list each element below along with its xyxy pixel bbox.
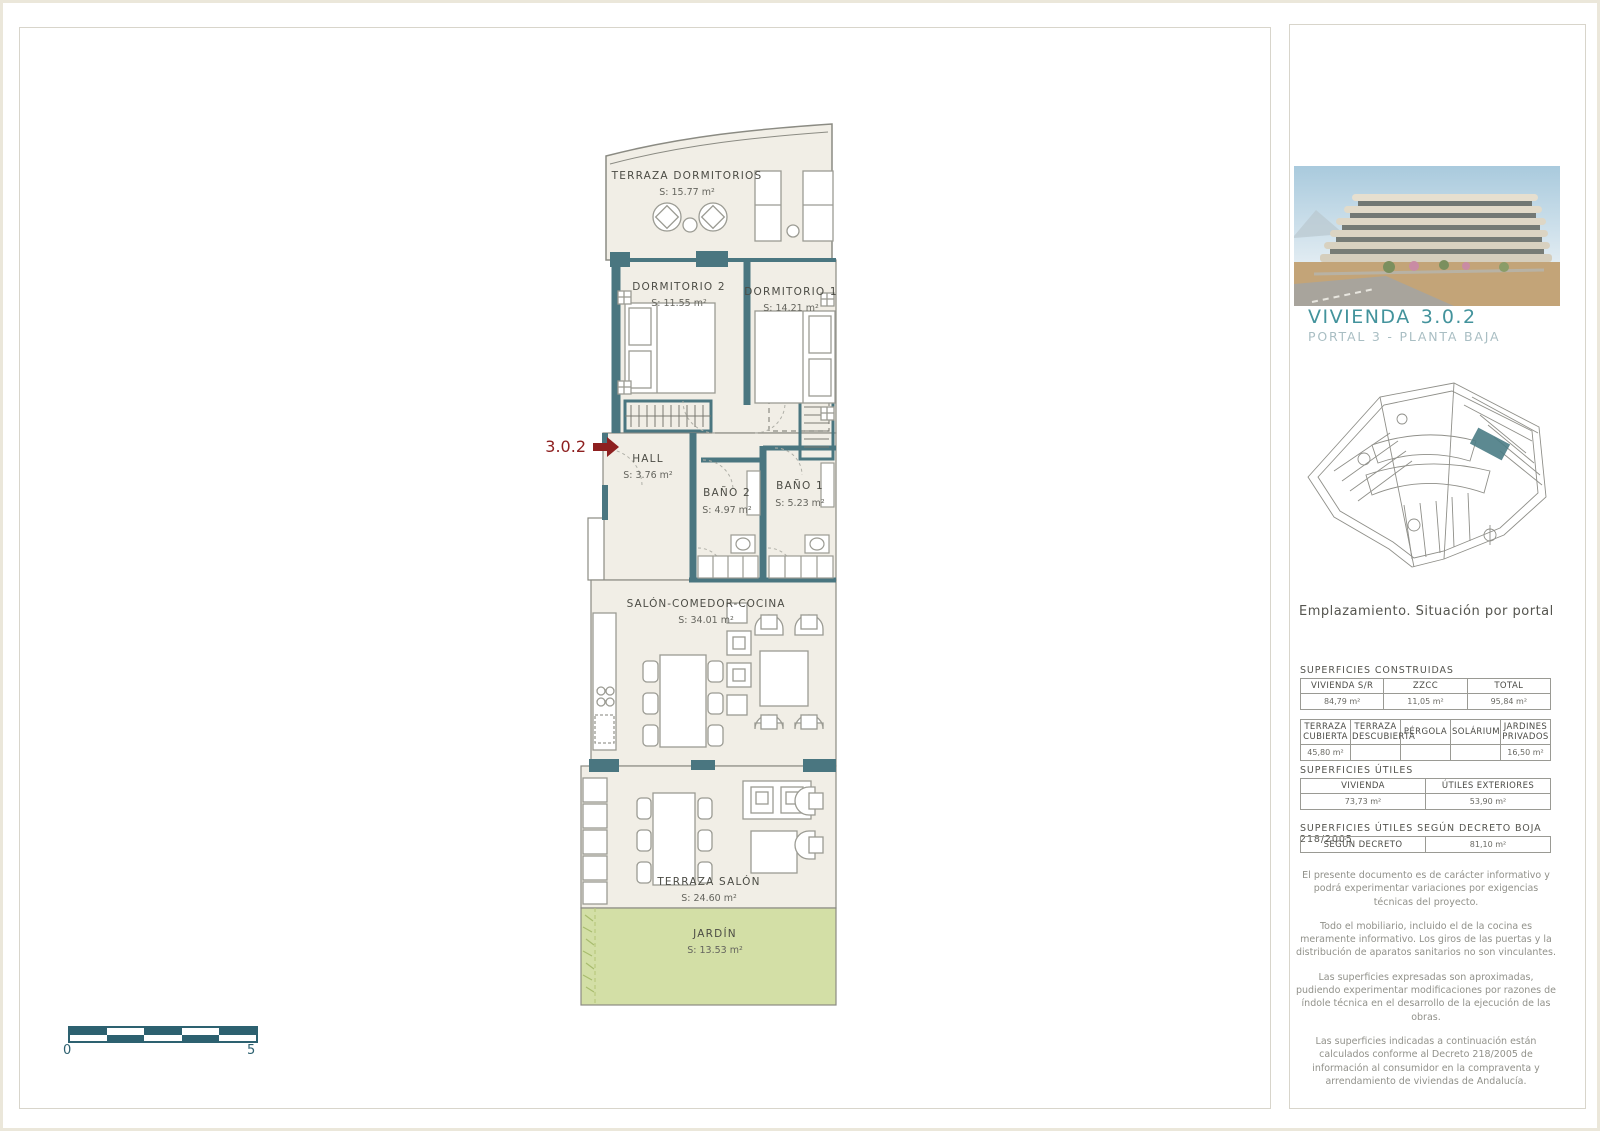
section-label-construidas: SUPERFICIES CONSTRUIDAS <box>1300 665 1454 676</box>
th-solarium: SOLÁRIUM <box>1451 720 1501 745</box>
td-zzcc: 11,05 m² <box>1384 694 1467 710</box>
room-area-hall: S: 3.76 m² <box>623 470 673 481</box>
scale-end-label: 5 <box>247 1043 255 1058</box>
table-construidas-main: VIVIENDA S/R ZZCC TOTAL 84,79 m² 11,05 m… <box>1300 678 1551 710</box>
unit-number-label: 3.0.2 <box>545 437 586 456</box>
table-construidas-exteriores: TERRAZA CUBIERTA TERRAZA DESCUBIERTA PÉR… <box>1300 719 1551 761</box>
td-solarium <box>1451 745 1501 761</box>
unit-title: VIVIENDA3.0.2 <box>1308 306 1477 328</box>
note-superficies-aproximadas: Las superficies expresadas son aproximad… <box>1295 971 1557 1024</box>
scale-start-label: 0 <box>63 1043 71 1058</box>
note-mobiliario: Todo el mobiliario, incluido el de la co… <box>1295 920 1557 960</box>
th-terraza-descubierta: TERRAZA DESCUBIERTA <box>1351 720 1401 745</box>
unit-title-word: VIVIENDA <box>1308 306 1411 328</box>
td-utiles-exteriores: 53,90 m² <box>1426 794 1551 810</box>
room-area-bano-1: S: 5.23 m² <box>775 498 825 509</box>
th-jardines-privados: JARDINES PRIVADOS <box>1501 720 1551 745</box>
table-decreto: SEGÚN DECRETO 81,10 m² <box>1300 836 1551 853</box>
td-total: 95,84 m² <box>1467 694 1550 710</box>
room-label-hall: HALL <box>632 453 664 465</box>
unit-title-number: 3.0.2 <box>1421 306 1477 328</box>
legal-notes: El presente documento es de carácter inf… <box>1295 869 1557 1099</box>
building-render-image <box>1294 166 1560 306</box>
note-informativo: El presente documento es de carácter inf… <box>1295 869 1557 909</box>
th-total: TOTAL <box>1467 679 1550 694</box>
room-area-bano-2: S: 4.97 m² <box>702 505 752 516</box>
room-label-salon: SALÓN-COMEDOR-COCINA <box>627 597 786 610</box>
document-page: 3.0.2 TERRAZA DORMITORIOS S: 15.77 m² DO… <box>0 0 1600 1131</box>
room-label-bano-1: BAÑO 1 <box>776 479 824 492</box>
room-area-terraza-salon: S: 24.60 m² <box>681 893 737 904</box>
section-label-utiles: SUPERFICIES ÚTILES <box>1300 765 1413 776</box>
td-vivienda-sr: 84,79 m² <box>1301 694 1384 710</box>
th-segun-decreto: SEGÚN DECRETO <box>1301 837 1426 853</box>
scale-bar <box>68 1026 258 1043</box>
room-area-dormitorio-1: S: 14.21 m² <box>763 303 819 314</box>
unit-subtitle: PORTAL 3 - PLANTA BAJA <box>1308 329 1500 344</box>
td-jardines-privados: 16,50 m² <box>1501 745 1551 761</box>
room-label-terraza-salon: TERRAZA SALÓN <box>656 875 760 888</box>
unit-pointer: 3.0.2 <box>545 437 619 457</box>
th-utiles-exteriores: ÚTILES EXTERIORES <box>1426 779 1551 794</box>
th-terraza-cubierta: TERRAZA CUBIERTA <box>1301 720 1351 745</box>
table-utiles: VIVIENDA ÚTILES EXTERIORES 73,73 m² 53,9… <box>1300 778 1551 810</box>
td-terraza-cubierta: 45,80 m² <box>1301 745 1351 761</box>
room-label-terraza-dormitorios: TERRAZA DORMITORIOS <box>611 170 763 182</box>
room-area-terraza-dormitorios: S: 15.77 m² <box>659 187 715 198</box>
room-label-dormitorio-1: DORMITORIO 1 <box>744 286 838 298</box>
siteplan-caption: Emplazamiento. Situación por portal <box>1299 604 1554 619</box>
room-area-dormitorio-2: S: 11.55 m² <box>651 298 707 309</box>
th-vivienda-sr: VIVIENDA S/R <box>1301 679 1384 694</box>
td-pergola <box>1401 745 1451 761</box>
th-zzcc: ZZCC <box>1384 679 1467 694</box>
note-decreto: Las superficies indicadas a continuación… <box>1295 1035 1557 1088</box>
room-label-jardin: JARDÍN <box>692 927 737 940</box>
site-plan-drawing <box>1294 375 1560 603</box>
td-utiles-vivienda: 73,73 m² <box>1301 794 1426 810</box>
td-terraza-descubierta <box>1351 745 1401 761</box>
room-area-jardin: S: 13.53 m² <box>687 945 743 956</box>
td-segun-decreto: 81,10 m² <box>1426 837 1551 853</box>
th-utiles-vivienda: VIVIENDA <box>1301 779 1426 794</box>
room-area-salon: S: 34.01 m² <box>678 615 734 626</box>
room-label-dormitorio-2: DORMITORIO 2 <box>632 281 726 293</box>
room-label-bano-2: BAÑO 2 <box>703 486 751 499</box>
